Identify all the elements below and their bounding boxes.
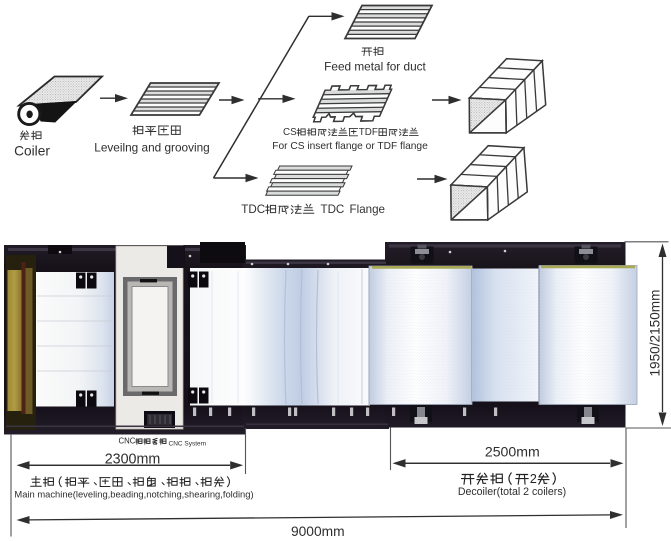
svg-text:9000mm: 9000mm — [291, 524, 345, 539]
svg-text:D: D — [248, 203, 256, 216]
svg-text:C: C — [130, 437, 136, 446]
svg-text:C: C — [336, 203, 344, 216]
svg-text:S: S — [290, 127, 297, 138]
svg-text:1950/2150mm: 1950/2150mm — [648, 290, 663, 377]
svg-text:Feed metal for duct: Feed metal for duct — [324, 59, 426, 73]
svg-text:D: D — [365, 127, 372, 138]
svg-text:Coiler: Coiler — [14, 143, 50, 158]
svg-text:F: F — [372, 127, 378, 138]
svg-text:C: C — [257, 203, 265, 216]
svg-text:F: F — [350, 203, 357, 216]
svg-text:2500mm: 2500mm — [485, 443, 540, 459]
svg-text:Main machine(leveling,beading,: Main machine(leveling,beading,notching,s… — [14, 489, 253, 500]
svg-text:For CS insert flange or TDF fl: For CS insert flange or TDF flange — [272, 141, 428, 152]
svg-text:C: C — [283, 127, 290, 138]
svg-text:2: 2 — [530, 472, 537, 486]
svg-text:Decoiler(total 2 coilers): Decoiler(total 2 coilers) — [458, 486, 566, 498]
svg-text:2300mm: 2300mm — [105, 451, 161, 467]
svg-text:Leveilng and grooving: Leveilng and grooving — [94, 141, 209, 155]
svg-text:n: n — [366, 203, 372, 216]
svg-text:T: T — [241, 203, 248, 216]
svg-text:e: e — [379, 203, 385, 216]
svg-text:D: D — [328, 203, 336, 216]
svg-text:CNC System: CNC System — [169, 440, 207, 447]
svg-text:T: T — [321, 203, 328, 216]
